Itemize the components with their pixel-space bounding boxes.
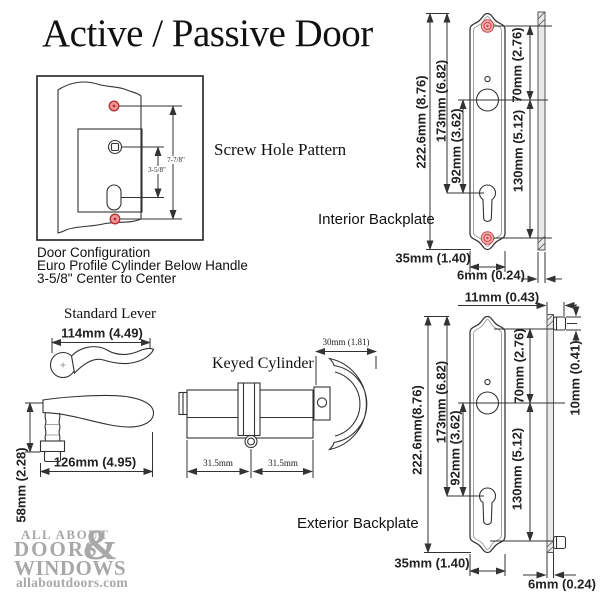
lever-post-cap: [41, 441, 65, 452]
screw-boss-top: [554, 317, 566, 330]
interior-backplate-drawing: [426, 12, 562, 283]
logo-website: allaboutdoors.com: [16, 576, 128, 590]
ext-dim-overall-height: 222.6mm(8.76): [410, 385, 425, 475]
ext-dim-handle-to-cylinder: 92mm (3.62): [448, 410, 463, 485]
int-dim-handle-to-cylinder: 92mm (3.62): [449, 108, 464, 183]
int-dim-thickness: 6mm (0.24): [457, 268, 525, 283]
dim-label-126mm: 126mm (4.95): [54, 455, 136, 470]
ext-dim-top-to-cylinder: 173mm (6.82): [434, 361, 449, 443]
lever-grip: [72, 347, 154, 373]
int-dim-overall-height: 222.6mm (8.76): [414, 75, 429, 168]
screw-hole-pattern-label: Screw Hole Pattern: [214, 140, 346, 160]
ext-dim-screw-to-handle: 70mm (2.76): [512, 328, 527, 403]
door-configuration-line3: 3-5/8" Center to Center: [37, 272, 248, 285]
ext-dim-handle-to-screw: 130mm (5.12): [510, 428, 525, 510]
int-dim-handle-to-screw: 130mm (5.12): [511, 110, 526, 192]
spindle-hole-icon: [109, 141, 122, 154]
keyed-cylinder-label: Keyed Cylinder: [212, 355, 314, 373]
int-dim-width: 35mm (1.40): [395, 251, 470, 266]
exterior-backplate-label: Exterior Backplate: [297, 515, 419, 532]
door-edge-outline: [58, 82, 141, 233]
side-profile: [547, 315, 554, 553]
dim-label-3-5-8: 3-5/8": [147, 166, 167, 174]
ext-dim-thickness: 6mm (0.24): [528, 577, 596, 592]
technical-diagram-page: Active / Passive Door Screw Hole Pattern…: [0, 0, 600, 600]
dim-label-58mm: 58mm (2.28): [14, 447, 29, 522]
ext-dim-boss-depth: 10mm (0.41): [568, 340, 583, 415]
dim-label-7-7-8: 7-7/8": [166, 156, 186, 164]
ext-dim-width: 35mm (1.40): [394, 556, 469, 571]
page-title: Active / Passive Door: [42, 11, 373, 56]
int-dim-top-to-cylinder: 173mm (6.82): [434, 60, 449, 142]
screw-boss-bottom: [554, 537, 566, 549]
dim-label-31-5-left: 31.5mm: [203, 458, 233, 468]
dim-label-114mm: 114mm (4.49): [61, 326, 143, 341]
dim-label-30mm: 30mm (1.81): [323, 337, 370, 347]
interior-backplate-label: Interior Backplate: [318, 211, 435, 228]
ext-dim-total-depth: 11mm (0.43): [465, 290, 539, 305]
lever-top-view-drawing: [51, 338, 154, 378]
dim-label-31-5-right: 31.5mm: [268, 458, 298, 468]
euro-cylinder-hole: [107, 185, 121, 210]
int-dim-screw-to-handle: 70mm (2.76): [510, 27, 525, 102]
cylinder-cam: [238, 383, 260, 436]
cylinder-screw-hole: [245, 436, 257, 448]
side-profile: [538, 12, 545, 250]
standard-lever-label: Standard Lever: [64, 306, 156, 323]
door-configuration-text: Door Configuration Euro Profile Cylinder…: [37, 246, 248, 285]
